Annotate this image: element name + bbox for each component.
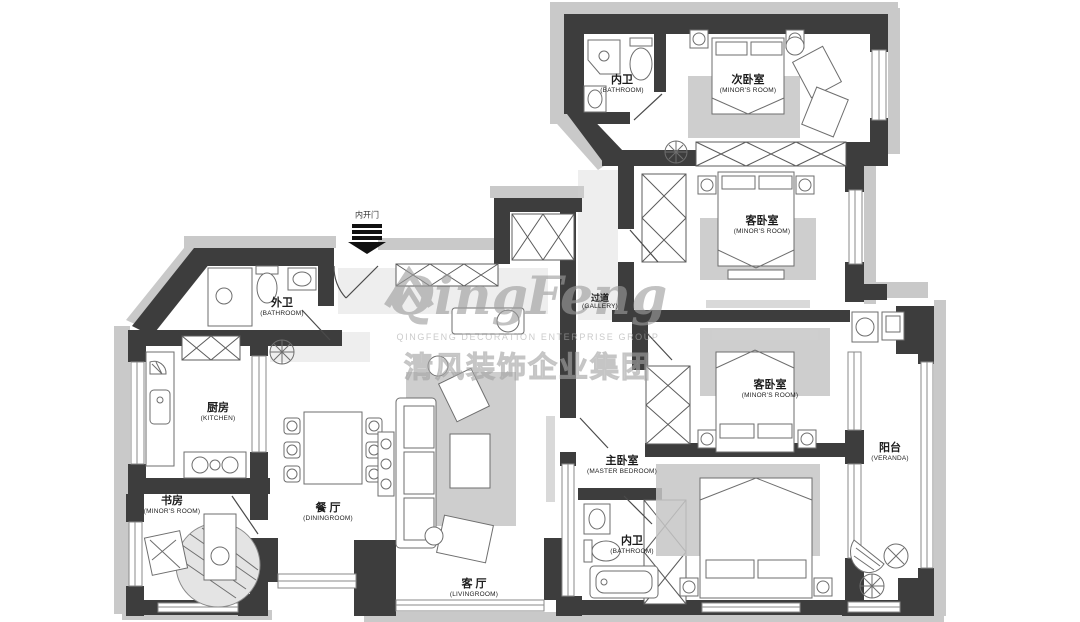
master-bedroom-furniture	[656, 464, 832, 598]
kitchen-furniture	[146, 352, 246, 478]
floor-plan-drawing	[0, 0, 1080, 622]
bedroom-third-furniture	[698, 328, 830, 452]
bathroom-outer-fixtures	[208, 266, 316, 326]
entrance-label: 内开门	[355, 210, 379, 221]
bedroom-second-furniture	[698, 172, 816, 308]
study-furniture	[144, 514, 260, 607]
bathroom-top-fixtures	[584, 38, 652, 112]
floor-plan: Qing Feng QINGFENG DECORATION ENTERPRISE…	[0, 0, 1080, 622]
hallway-console	[452, 308, 524, 334]
dining-furniture	[284, 412, 382, 484]
